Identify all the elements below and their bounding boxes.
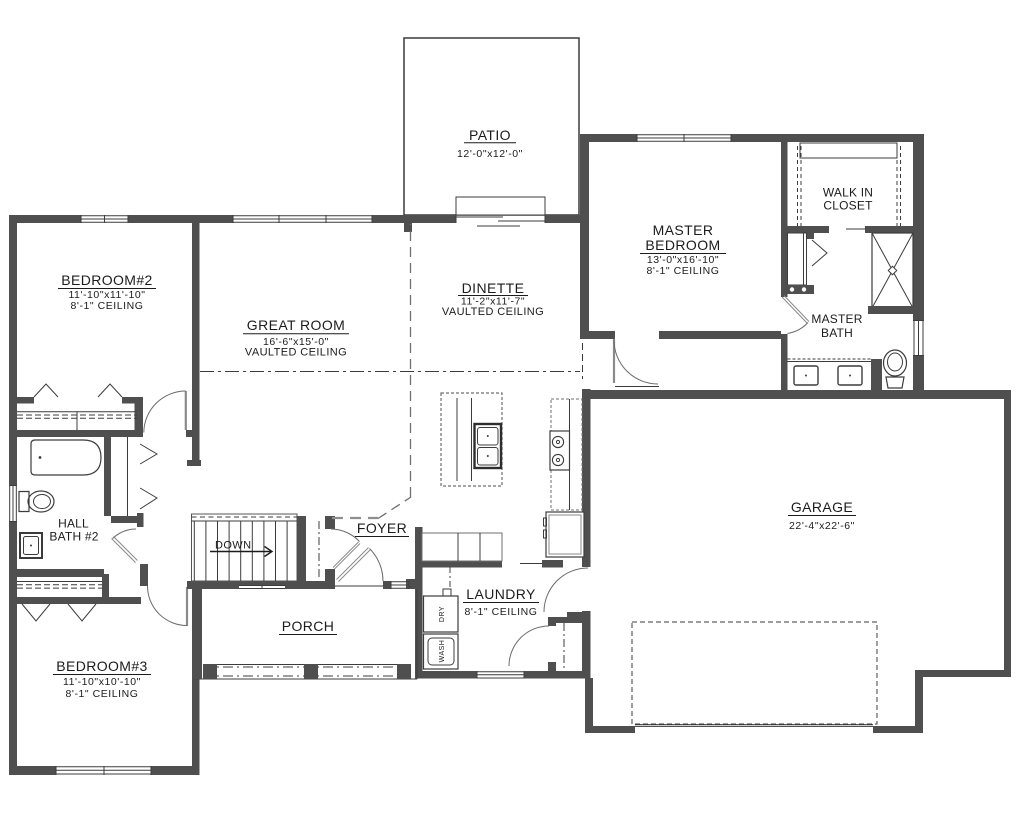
svg-text:WASH: WASH <box>439 640 446 663</box>
svg-text:HALL: HALL <box>58 517 89 531</box>
svg-text:8'-1" CEILING: 8'-1" CEILING <box>71 300 144 312</box>
svg-text:FOYER: FOYER <box>357 520 407 536</box>
svg-text:BEDROOM#2: BEDROOM#2 <box>61 272 153 288</box>
svg-text:LAUNDRY: LAUNDRY <box>466 586 536 602</box>
svg-text:PATIO: PATIO <box>469 127 511 143</box>
svg-text:GREAT ROOM: GREAT ROOM <box>247 317 345 333</box>
svg-text:MASTER: MASTER <box>653 222 714 238</box>
svg-text:VAULTED CEILING: VAULTED CEILING <box>245 347 347 359</box>
svg-text:BATH #2: BATH #2 <box>49 530 98 544</box>
svg-text:12'-0"x12'-0": 12'-0"x12'-0" <box>457 148 523 160</box>
svg-text:BEDROOM#3: BEDROOM#3 <box>56 658 148 674</box>
svg-text:8'-1" CEILING: 8'-1" CEILING <box>647 265 720 277</box>
svg-text:8'-1" CEILING: 8'-1" CEILING <box>66 688 139 700</box>
svg-text:DINETTE: DINETTE <box>462 280 525 296</box>
svg-text:22'-4"x22'-6": 22'-4"x22'-6" <box>789 520 855 532</box>
svg-text:DOWN: DOWN <box>215 540 251 552</box>
svg-text:GARAGE: GARAGE <box>791 499 853 515</box>
svg-text:11'-10"x10'-10": 11'-10"x10'-10" <box>63 676 141 688</box>
svg-text:DRY: DRY <box>439 606 446 622</box>
svg-text:CLOSET: CLOSET <box>823 199 873 213</box>
svg-text:VAULTED CEILING: VAULTED CEILING <box>442 306 544 318</box>
svg-text:PORCH: PORCH <box>282 618 335 634</box>
svg-text:BATH: BATH <box>821 326 853 340</box>
svg-text:WALK IN: WALK IN <box>823 186 873 200</box>
svg-text:BEDROOM: BEDROOM <box>645 237 720 253</box>
svg-text:MASTER: MASTER <box>811 312 862 326</box>
svg-text:8'-1" CEILING: 8'-1" CEILING <box>465 606 538 618</box>
